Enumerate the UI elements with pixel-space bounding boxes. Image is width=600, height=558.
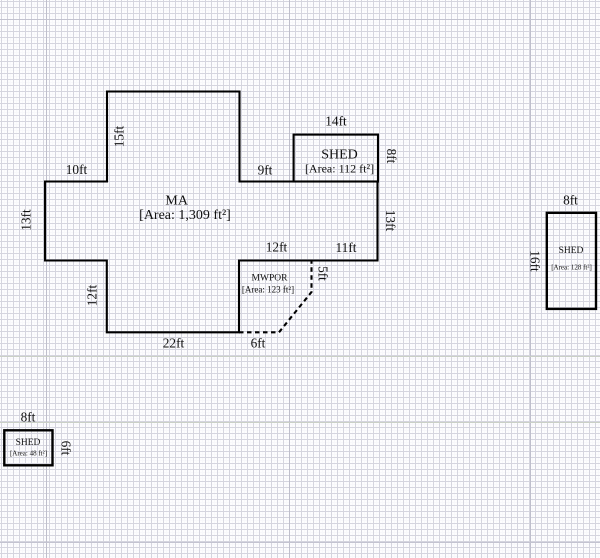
svg-text:6ft: 6ft: [251, 336, 266, 351]
svg-text:SHED: SHED: [559, 246, 584, 256]
svg-text:10ft: 10ft: [66, 162, 88, 177]
svg-text:8ft: 8ft: [563, 193, 578, 208]
svg-text:15ft: 15ft: [112, 125, 127, 147]
svg-text:16ft: 16ft: [528, 250, 543, 272]
svg-text:MWPOR: MWPOR: [252, 274, 289, 284]
svg-text:[Area: 112 ft²]: [Area: 112 ft²]: [305, 162, 374, 176]
svg-text:12ft: 12ft: [266, 240, 288, 255]
svg-text:SHED: SHED: [16, 438, 41, 448]
svg-text:[Area: 123 ft²]: [Area: 123 ft²]: [242, 285, 294, 295]
svg-text:[Area: 1,309 ft²]: [Area: 1,309 ft²]: [139, 208, 231, 223]
svg-text:22ft: 22ft: [163, 336, 185, 351]
svg-text:13ft: 13ft: [383, 210, 398, 232]
svg-text:12ft: 12ft: [85, 284, 100, 306]
svg-text:8ft: 8ft: [384, 149, 399, 164]
svg-text:9ft: 9ft: [258, 163, 273, 178]
svg-text:8ft: 8ft: [21, 410, 36, 425]
svg-text:MA: MA: [165, 194, 188, 209]
svg-text:[Area: 48 ft²]: [Area: 48 ft²]: [10, 450, 47, 458]
svg-text:6ft: 6ft: [59, 441, 74, 456]
svg-text:SHED: SHED: [321, 148, 358, 163]
svg-text:14ft: 14ft: [325, 114, 347, 129]
svg-text:11ft: 11ft: [336, 240, 357, 255]
svg-text:[Area: 128 ft²]: [Area: 128 ft²]: [551, 264, 592, 272]
svg-text:13ft: 13ft: [19, 209, 34, 231]
svg-text:5ft: 5ft: [316, 266, 331, 281]
